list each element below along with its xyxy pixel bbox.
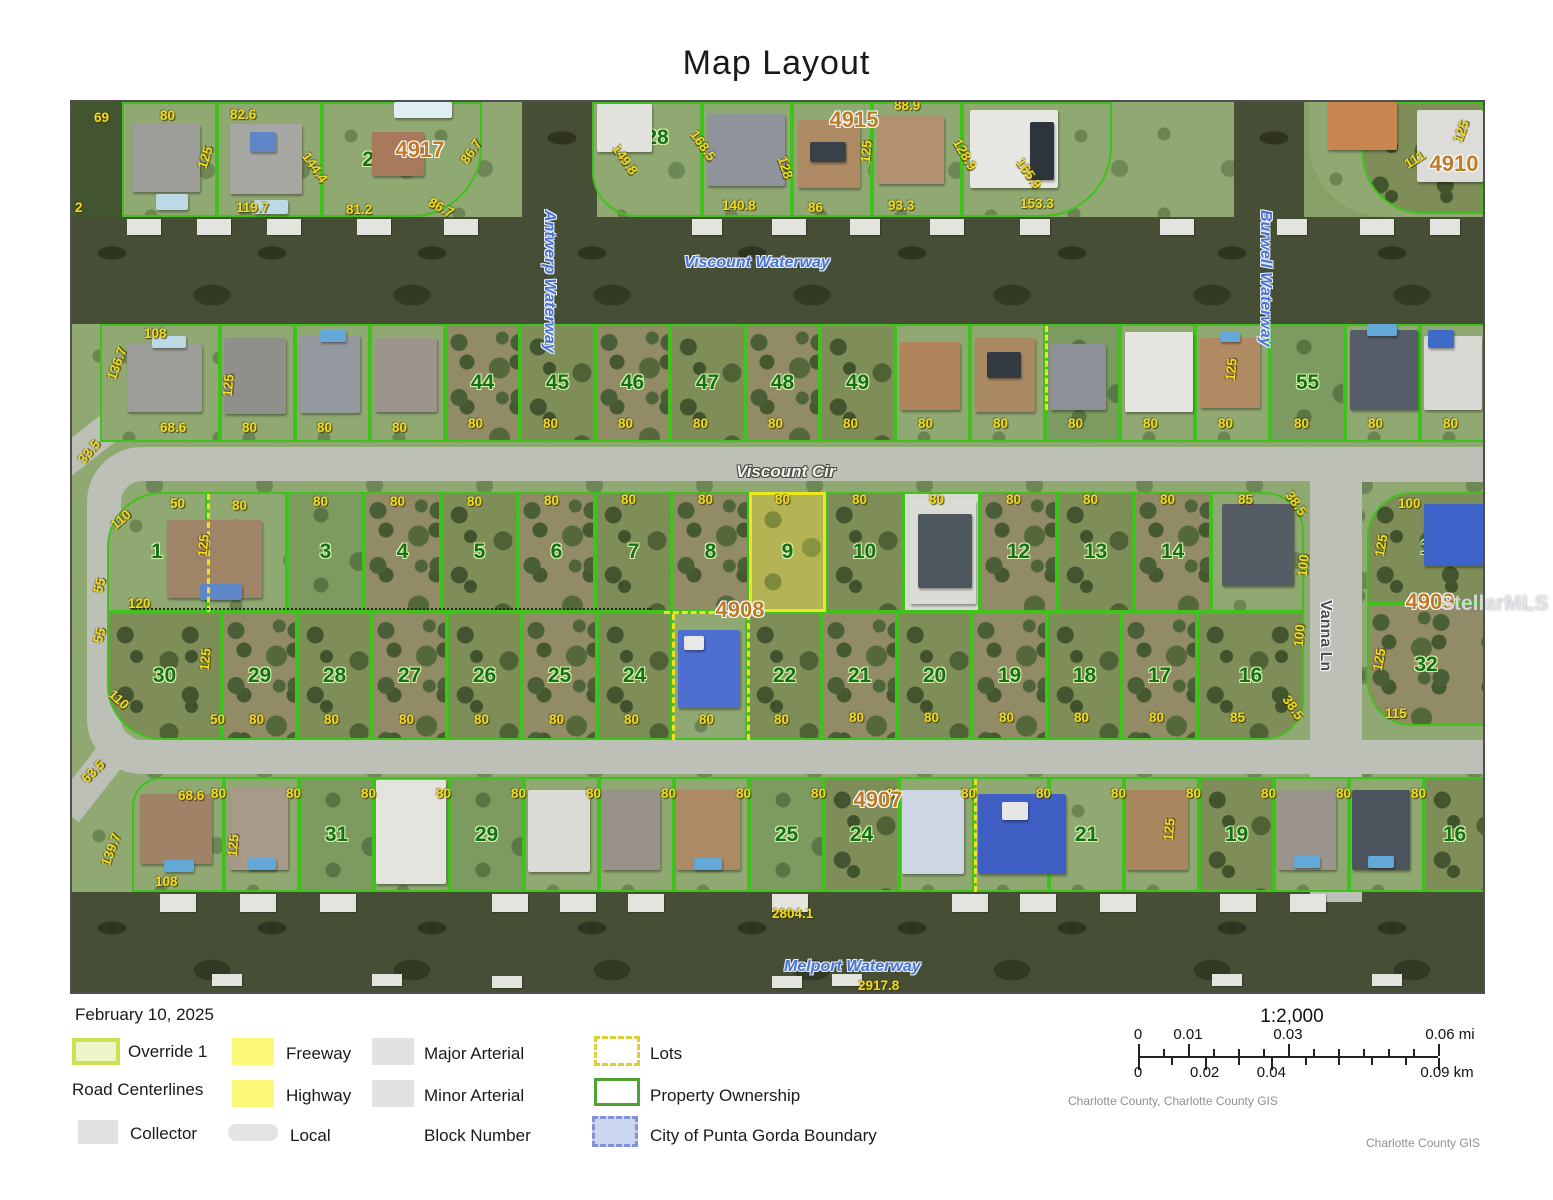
scalebar-tick <box>1338 1049 1340 1056</box>
legend-swatch-gray <box>372 1080 414 1107</box>
dock <box>560 894 596 912</box>
lot-number: 16 <box>1443 823 1466 847</box>
dimension-label: 80 <box>1261 786 1276 801</box>
dimension-label: 80 <box>1111 786 1126 801</box>
scalebar-km-label: 0.04 <box>1257 1064 1286 1081</box>
dock <box>1160 219 1194 235</box>
waterway-label: Melport Waterway <box>784 958 921 976</box>
lot-number: 17 <box>1148 664 1171 688</box>
dimension-label: 108 <box>144 326 167 341</box>
dimension-label: 80 <box>924 710 939 725</box>
road-segment <box>1362 740 1485 774</box>
dimension-label: 80 <box>736 786 751 801</box>
lot-parcel-6: 6 <box>518 492 595 612</box>
dimension-label: 80 <box>1149 710 1164 725</box>
lot-number: 6 <box>551 540 563 564</box>
dock <box>1430 219 1460 235</box>
house <box>597 104 652 152</box>
house <box>902 790 964 874</box>
dimension-label: 80 <box>961 786 976 801</box>
dimension-label: 125 <box>195 534 212 558</box>
lot-number: 44 <box>471 371 494 395</box>
dashed-lot-line <box>747 614 750 740</box>
scalebar-km-label: 0.09 km <box>1420 1064 1473 1081</box>
dock <box>772 976 802 988</box>
house <box>1220 332 1240 342</box>
scalebar-mi-label: 0.06 mi <box>1425 1026 1474 1043</box>
house <box>300 335 360 413</box>
dimension-label: 80 <box>390 494 405 509</box>
waterway-label: Antwerp Waterway <box>540 210 558 353</box>
lot-number: 10 <box>853 540 876 564</box>
dimension-label: 80 <box>1218 416 1233 431</box>
scalebar-line <box>1138 1056 1438 1058</box>
credit-line2: Charlotte County GIS <box>1366 1136 1480 1150</box>
lot-number: 27 <box>398 664 421 688</box>
scalebar-mi-label: 0 <box>1134 1026 1142 1043</box>
lot-parcel-30: 30 <box>107 612 222 740</box>
dock <box>628 894 664 912</box>
lot-parcel-13: 13 <box>1057 492 1134 612</box>
legend-label: Block Number <box>424 1126 531 1146</box>
house <box>694 858 722 870</box>
scalebar-tick <box>1238 1058 1240 1065</box>
house <box>707 114 785 186</box>
scalebar-tick <box>1213 1049 1215 1056</box>
lot-number: 13 <box>1084 540 1107 564</box>
dashed-lot-line <box>1045 326 1048 410</box>
dock <box>1277 219 1307 235</box>
legend-label: Freeway <box>286 1044 351 1064</box>
dimension-label: 80 <box>1160 492 1175 507</box>
block-number-label: 4910 <box>1430 151 1479 177</box>
legend-swatch-blue <box>592 1116 638 1147</box>
scalebar-km-label: 0.02 <box>1190 1064 1219 1081</box>
dimension-label: 80 <box>775 492 790 507</box>
dimension-label: 81.2 <box>346 202 372 217</box>
dock <box>1212 974 1242 986</box>
lot-number: 19 <box>1225 823 1248 847</box>
dimension-label: 2804.1 <box>772 906 813 921</box>
legend-label: City of Punta Gorda Boundary <box>650 1126 877 1146</box>
scalebar-tick <box>1163 1049 1165 1056</box>
dimension-label: 100 <box>1398 496 1421 511</box>
dock <box>1372 974 1402 986</box>
dashed-lot-line <box>672 614 675 740</box>
dock <box>267 219 301 235</box>
lot-number: 12 <box>1007 540 1030 564</box>
lot-number: 19 <box>998 664 1021 688</box>
dimension-label: 80 <box>1411 786 1426 801</box>
house <box>1367 324 1397 336</box>
dimension-label: 80 <box>811 786 826 801</box>
dock <box>357 219 391 235</box>
dimension-label: 80 <box>211 786 226 801</box>
lot-parcel-5: 5 <box>441 492 518 612</box>
dock <box>444 219 478 235</box>
watermark: StellarMLS <box>1440 592 1549 616</box>
dimension-label: 80 <box>621 492 636 507</box>
scalebar-tick <box>1305 1058 1307 1065</box>
house <box>900 342 960 410</box>
dimension-label: 80 <box>232 498 247 513</box>
dimension-label: 125 <box>225 834 242 858</box>
dimension-label: 80 <box>768 416 783 431</box>
lot-number: 1 <box>151 540 163 564</box>
dimension-label: 125 <box>197 648 214 672</box>
scalebar-tick <box>1288 1044 1290 1056</box>
dimension-label: 80 <box>1143 416 1158 431</box>
lot-parcel-7: 7 <box>595 492 672 612</box>
legend-label: Road Centerlines <box>72 1080 203 1100</box>
legend-label: Property Ownership <box>650 1086 800 1106</box>
lot-number: 30 <box>153 664 176 688</box>
lot-number: 25 <box>548 664 571 688</box>
legend-swatch-yellow <box>232 1080 274 1107</box>
legend-swatch-dashed <box>594 1036 640 1066</box>
lot-number: 26 <box>473 664 496 688</box>
dimension-label: 80 <box>249 712 264 727</box>
dimension-label: 80 <box>286 786 301 801</box>
waterway-label: Viscount Waterway <box>684 254 830 272</box>
house <box>528 790 590 872</box>
dimension-label: 80 <box>852 492 867 507</box>
dimension-label: 153.3 <box>1020 196 1054 211</box>
scalebar-mi-label: 0.03 <box>1273 1026 1302 1043</box>
lot-number: 29 <box>475 823 498 847</box>
dimension-label: 80 <box>918 416 933 431</box>
dimension-label: 88.9 <box>894 100 920 113</box>
lot-parcel-16: 16 <box>1197 612 1304 740</box>
dock <box>240 894 276 912</box>
lot-parcel-4: 4 <box>364 492 441 612</box>
legend-label: Collector <box>130 1124 197 1144</box>
dimension-label: 80 <box>543 416 558 431</box>
lot-number: 14 <box>1161 540 1184 564</box>
scalebar-tick <box>1138 1049 1140 1056</box>
house <box>1428 330 1454 348</box>
dock <box>1100 894 1136 912</box>
dimension-label: 80 <box>929 492 944 507</box>
dimension-label: 80 <box>313 494 328 509</box>
scalebar-tick <box>1313 1049 1315 1056</box>
dock <box>930 219 964 235</box>
house <box>810 142 846 162</box>
legend-swatch-green <box>594 1078 640 1106</box>
scalebar-tick <box>1238 1049 1240 1056</box>
dotted-survey-line <box>132 608 652 610</box>
lot-parcel-14: 14 <box>1134 492 1211 612</box>
lot-parcel-12: 12 <box>980 492 1057 612</box>
dimension-label: 80 <box>1443 416 1458 431</box>
house <box>987 352 1021 378</box>
lot-number: 5 <box>474 540 486 564</box>
lot-number: 24 <box>850 823 873 847</box>
house <box>127 344 202 412</box>
lot-parcel-16: 16 <box>1424 777 1485 892</box>
house <box>1125 332 1193 412</box>
lot-number: 21 <box>848 664 871 688</box>
map-layout-page: Map Layout 24232228272625241440414243444… <box>0 0 1553 1200</box>
dimension-label: 80 <box>549 712 564 727</box>
dimension-label: 80 <box>1186 786 1201 801</box>
house <box>878 116 944 184</box>
dimension-label: 80 <box>392 420 407 435</box>
house <box>140 794 212 864</box>
road-segment <box>1362 447 1485 482</box>
scalebar-tick <box>1371 1058 1373 1065</box>
dock <box>692 219 722 235</box>
lot-number: 7 <box>628 540 640 564</box>
canal-antwerp-waterway <box>522 102 597 220</box>
dimension-label: 82.6 <box>230 107 256 122</box>
canal-burwell-waterway <box>1234 102 1304 220</box>
house <box>684 636 704 650</box>
dimension-label: 80 <box>317 420 332 435</box>
legend-label: Local <box>290 1126 331 1146</box>
dimension-label: 80 <box>1336 786 1351 801</box>
lot-parcel-10: 10 <box>826 492 903 612</box>
house <box>602 790 660 870</box>
dimension-label: 50 <box>170 496 185 511</box>
house <box>1350 330 1418 410</box>
house <box>164 860 194 872</box>
dimension-label: 80 <box>849 710 864 725</box>
block-number-label: 4907 <box>854 787 903 813</box>
dimension-label: 108 <box>155 874 178 889</box>
lot-number: 28 <box>323 664 346 688</box>
house <box>1294 856 1320 868</box>
dimension-label: 80 <box>1294 416 1309 431</box>
dimension-label: 80 <box>993 416 1008 431</box>
dock <box>212 974 242 986</box>
legend-swatch-local <box>228 1124 278 1141</box>
map-date: February 10, 2025 <box>75 1005 214 1025</box>
scalebar-tick <box>1338 1058 1340 1065</box>
scalebar-km-label: 0 <box>1134 1064 1142 1081</box>
lot-number: 46 <box>621 371 644 395</box>
dimension-label: 85 <box>1230 710 1245 725</box>
lot-parcel-8: 8 <box>672 492 749 612</box>
lot-number: 25 <box>775 823 798 847</box>
scalebar-tick <box>1171 1058 1173 1065</box>
block-number-label: 4917 <box>396 137 445 163</box>
dock <box>850 219 880 235</box>
dimension-label: 80 <box>242 420 257 435</box>
lot-number: 48 <box>771 371 794 395</box>
dimension-label: 140.8 <box>722 198 756 213</box>
dimension-label: 120 <box>128 596 151 611</box>
house <box>320 330 346 342</box>
dock <box>1360 219 1394 235</box>
block-number-label: 4908 <box>716 597 765 623</box>
house <box>394 102 452 118</box>
dimension-label: 2 <box>75 200 83 215</box>
dimension-label: 68.6 <box>178 788 204 803</box>
house <box>132 124 200 192</box>
dock <box>1290 894 1326 912</box>
dimension-label: 119.7 <box>236 200 269 215</box>
legend-label: Override 1 <box>128 1042 207 1062</box>
lot-number: 22 <box>773 664 796 688</box>
dimension-label: 80 <box>586 786 601 801</box>
dimension-label: 125 <box>1223 358 1240 382</box>
scalebar-tick <box>1413 1049 1415 1056</box>
lot-number: 24 <box>623 664 646 688</box>
house <box>1424 504 1484 566</box>
dock <box>1020 894 1056 912</box>
dimension-label: 80 <box>624 712 639 727</box>
dimension-label: 80 <box>699 712 714 727</box>
scalebar-tick <box>1263 1049 1265 1056</box>
dimension-label: 80 <box>1368 416 1383 431</box>
dimension-label: 80 <box>436 786 451 801</box>
dimension-label: 85 <box>1238 492 1253 507</box>
lot-number: 47 <box>696 371 719 395</box>
lot-number: 16 <box>1239 664 1262 688</box>
legend-label: Highway <box>286 1086 351 1106</box>
dimension-label: 80 <box>324 712 339 727</box>
house <box>1050 344 1106 410</box>
lot-number: 49 <box>846 371 869 395</box>
dock <box>1220 894 1256 912</box>
dock <box>492 976 522 988</box>
house <box>1222 504 1294 586</box>
scalebar-tick <box>1405 1058 1407 1065</box>
house <box>156 194 188 210</box>
waterway-label: Burwell Waterway <box>1256 210 1274 347</box>
lot-parcel-3: 3 <box>287 492 364 612</box>
legend-swatch-yellow <box>232 1038 274 1065</box>
dimension-label: 100 <box>1291 624 1308 648</box>
aerial-map: 2423222827262524144041424344454647484950… <box>70 100 1485 994</box>
scalebar-tick <box>1188 1044 1190 1056</box>
dimension-label: 80 <box>511 786 526 801</box>
dimension-label: 80 <box>474 712 489 727</box>
legend-label: Minor Arterial <box>424 1086 524 1106</box>
legend-label: Major Arterial <box>424 1044 524 1064</box>
dimension-label: 80 <box>843 416 858 431</box>
dock <box>952 894 988 912</box>
dock <box>320 894 356 912</box>
dimension-label: 80 <box>693 416 708 431</box>
lot-number: 18 <box>1073 664 1096 688</box>
lot-number: 20 <box>923 664 946 688</box>
house <box>248 858 276 870</box>
dock <box>772 219 806 235</box>
lot-number: 8 <box>705 540 717 564</box>
dimension-label: 80 <box>1083 492 1098 507</box>
house <box>1327 102 1397 150</box>
lot-number: 3 <box>320 540 332 564</box>
dimension-label: 68.6 <box>160 420 186 435</box>
lot-number: 29 <box>248 664 271 688</box>
dock <box>372 974 402 986</box>
house <box>1002 802 1028 820</box>
legend-swatch-gray <box>78 1120 118 1144</box>
lot-number: 4 <box>397 540 409 564</box>
dock <box>492 894 528 912</box>
house <box>1368 856 1394 868</box>
dimension-label: 80 <box>618 416 633 431</box>
dimension-label: 80 <box>1068 416 1083 431</box>
legend-label: Lots <box>650 1044 682 1064</box>
dimension-label: 80 <box>467 494 482 509</box>
legend-swatch-gray <box>372 1038 414 1065</box>
lot-number: 31 <box>325 823 348 847</box>
dimension-label: 80 <box>399 712 414 727</box>
dimension-label: 80 <box>1036 786 1051 801</box>
lot-parcel-9: 9 <box>749 492 826 612</box>
dimension-label: 93.3 <box>888 198 914 213</box>
dimension-label: 2917.8 <box>858 978 899 993</box>
street-label: Vanna Ln <box>1316 600 1334 671</box>
scalebar-mi-label: 0.01 <box>1173 1026 1202 1043</box>
dimension-label: 80 <box>774 712 789 727</box>
dock <box>197 219 231 235</box>
dimension-label: 80 <box>1006 492 1021 507</box>
dimension-label: 80 <box>160 108 175 123</box>
legend-swatch-override <box>72 1038 120 1065</box>
lot-number: 32 <box>1414 653 1437 677</box>
dimension-label: 125 <box>858 140 875 164</box>
dimension-label: 125 <box>1161 818 1178 842</box>
house <box>918 514 972 588</box>
dimension-label: 115 <box>1385 706 1407 721</box>
dock <box>127 219 161 235</box>
scalebar-tick <box>1438 1044 1440 1056</box>
dimension-label: 80 <box>999 710 1014 725</box>
dimension-label: 69 <box>94 110 109 125</box>
dimension-label: 80 <box>361 786 376 801</box>
house <box>250 132 276 152</box>
dock <box>160 894 196 912</box>
dimension-label: 86 <box>808 200 823 215</box>
scalebar-tick <box>1363 1049 1365 1056</box>
scale-ratio: 1:2,000 <box>1260 1006 1323 1028</box>
page-title: Map Layout <box>0 44 1553 83</box>
lot-number: 45 <box>546 371 569 395</box>
house <box>375 338 437 412</box>
dimension-label: 125 <box>220 374 237 398</box>
scalebar-tick <box>1388 1049 1390 1056</box>
dimension-label: 100 <box>1295 554 1312 578</box>
block-number-label: 4915 <box>830 107 879 133</box>
dimension-label: 80 <box>661 786 676 801</box>
dimension-label: 80 <box>544 493 559 508</box>
lot-number: 21 <box>1075 823 1098 847</box>
credit-line1: Charlotte County, Charlotte County GIS <box>1068 1094 1278 1108</box>
dimension-label: 80 <box>1074 710 1089 725</box>
lot-number: 55 <box>1296 371 1319 395</box>
street-label: Viscount Cir <box>736 462 836 482</box>
dock <box>1020 219 1050 235</box>
dimension-label: 80 <box>468 416 483 431</box>
lot-number: 9 <box>782 540 794 564</box>
dimension-label: 80 <box>698 492 713 507</box>
dimension-label: 50 <box>210 712 225 727</box>
house <box>1126 790 1188 870</box>
